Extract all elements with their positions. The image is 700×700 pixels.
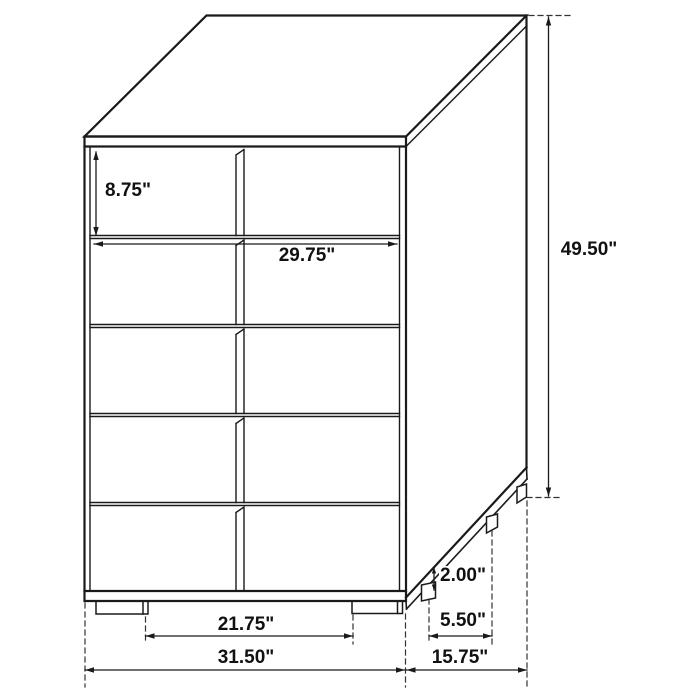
chest-line-drawing	[0, 0, 700, 700]
dim-label-front-leg-spacing: 21.75"	[217, 615, 276, 634]
furniture-dimension-diagram: 8.75" 29.75" 49.50" 2.00" 5.50" 21.75" 3…	[0, 0, 700, 700]
dim-label-drawer-width: 29.75"	[278, 246, 337, 265]
dim-label-side-leg-spacing: 5.50"	[439, 611, 487, 630]
front-legs	[96, 601, 403, 614]
dim-label-overall-width: 31.50"	[217, 648, 276, 667]
front-face	[85, 137, 407, 602]
side-face	[406, 16, 527, 610]
drawer-handle-strips	[236, 150, 244, 592]
drawer-separators	[90, 236, 400, 506]
dim-label-overall-height: 49.50"	[560, 240, 619, 259]
top-face	[85, 16, 527, 147]
dim-label-leg-height: 2.00"	[439, 566, 487, 585]
dim-label-drawer-height: 8.75"	[104, 181, 152, 200]
extension-lines	[85, 16, 571, 688]
dim-label-overall-depth: 15.75"	[431, 648, 490, 667]
